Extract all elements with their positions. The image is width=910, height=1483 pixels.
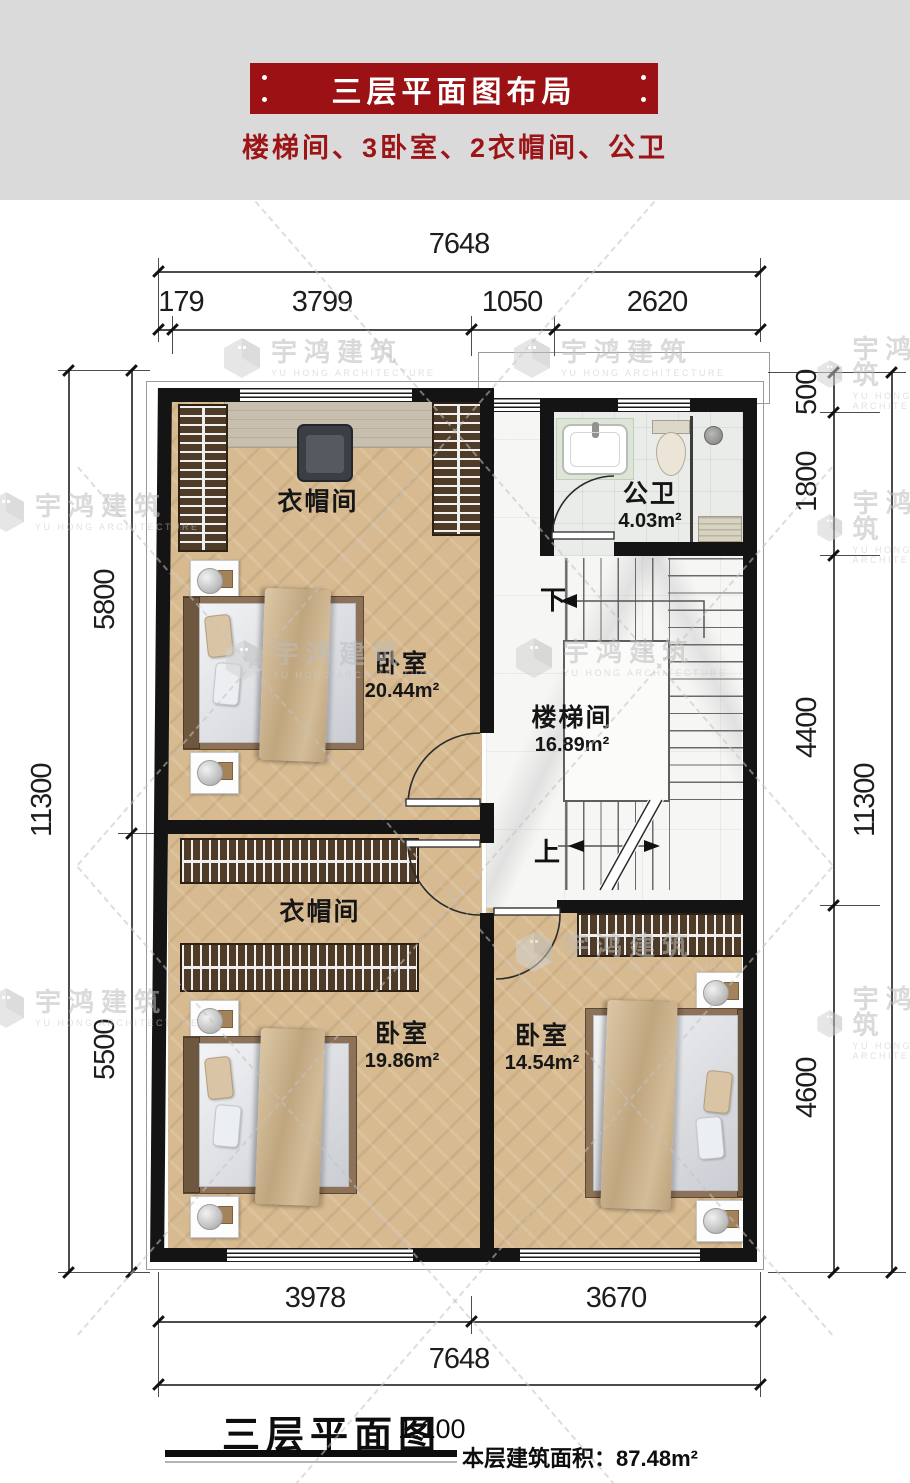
dim-seg: 1050 — [447, 286, 577, 319]
dim-seg: 4400 — [792, 648, 822, 808]
bed-headboard — [183, 597, 200, 749]
bed-bedroom-left — [183, 1036, 357, 1194]
dim-ext — [471, 1296, 472, 1334]
page-subtitle: 楼梯间、3卧室、2衣帽间、公卫 — [0, 126, 910, 165]
nightstand — [696, 1200, 745, 1242]
dim-seg: 1800 — [792, 402, 822, 562]
stair-up-mark: 上 — [534, 832, 560, 869]
watermark-en: YU HONG ARCHITECTURE — [852, 391, 910, 411]
banner-dot — [262, 97, 267, 102]
dim-ext — [820, 905, 880, 906]
bed-pillow — [204, 1056, 234, 1100]
bed-bedroom-top — [183, 596, 364, 750]
banner-dot — [641, 75, 646, 80]
dim-seg: 179 — [116, 286, 246, 319]
room-label-bathroom: 公卫 4.03m² — [618, 474, 681, 533]
page-title: 三层平面图布局 — [332, 67, 577, 111]
dim-seg: 3799 — [257, 286, 387, 319]
dim-seg: 5800 — [90, 520, 120, 680]
stair-flight-lower — [565, 800, 670, 890]
footer-area-value: 87.48m² — [616, 1446, 698, 1471]
wardrobe-bedroom-right — [577, 913, 756, 957]
banner-dot — [262, 75, 267, 80]
dim-ext — [58, 1272, 150, 1273]
footer-rule-thick — [165, 1450, 457, 1457]
dressing-chair — [297, 424, 353, 482]
dim-left-total: 11300 — [27, 720, 57, 880]
room-name: 衣帽间 — [277, 482, 358, 518]
footer-scale: 1:100 — [398, 1414, 466, 1445]
wall-right — [743, 398, 757, 1262]
sink — [562, 424, 628, 475]
stair-flight-upper — [565, 558, 670, 642]
dim-ext — [760, 1272, 761, 1397]
footer-area-label: 本层建筑面积： — [462, 1446, 616, 1471]
bed-pillow — [212, 1104, 242, 1148]
wall-corridor — [480, 803, 494, 843]
yuhong-logo-icon — [222, 336, 262, 380]
bed-blanket — [255, 1028, 325, 1206]
wardrobe-right — [432, 402, 484, 536]
room-name: 卧室 — [365, 1014, 440, 1050]
room-area: 4.03m² — [618, 510, 681, 533]
room-name: 衣帽间 — [279, 892, 360, 928]
dim-ext — [58, 370, 150, 371]
dim-line — [833, 372, 835, 1272]
banner-dot — [641, 97, 646, 102]
wall-corridor — [480, 913, 494, 1248]
dim-ext — [820, 412, 880, 413]
window-top-left — [240, 388, 412, 402]
watermark-text: 宇鸿建筑 YU HONG ARCHITECTURE — [852, 986, 910, 1061]
dim-seg: 3978 — [250, 1282, 380, 1315]
bed-headboard — [183, 1037, 200, 1193]
shower-bench — [698, 516, 742, 542]
dim-ext — [471, 316, 472, 356]
dim-ext — [768, 1272, 906, 1273]
room-label-bedroom-left: 卧室 19.86m² — [365, 1014, 440, 1073]
dim-bottom-total: 7648 — [394, 1343, 524, 1376]
watermark-cn: 宇鸿建筑 — [271, 339, 436, 365]
dim-line — [158, 271, 760, 273]
dim-seg: 2620 — [592, 286, 722, 319]
dim-top-total: 7648 — [394, 228, 524, 261]
dim-line — [158, 329, 760, 331]
watermark-text: 宇鸿建筑 YU HONG ARCHITECTURE — [852, 490, 910, 565]
wardrobe-mid-top — [180, 838, 419, 884]
room-name: 卧室 — [365, 644, 440, 680]
bed-pillow — [212, 662, 242, 706]
room-area: 19.86m² — [365, 1050, 440, 1073]
bed-pillow — [695, 1116, 725, 1160]
stair-flight-right — [668, 558, 743, 802]
watermark-cn: 宇鸿建筑 — [852, 986, 910, 1038]
room-area: 16.89m² — [531, 734, 612, 757]
window-bathroom — [618, 398, 690, 412]
wardrobe-mid-bottom — [180, 943, 419, 992]
room-area: 20.44m² — [365, 680, 440, 703]
room-label-stairs: 楼梯间 16.89m² — [531, 698, 612, 757]
bed-blanket — [259, 588, 331, 762]
nightstand — [190, 752, 239, 794]
bed-bedroom-right — [585, 1008, 754, 1198]
dim-seg: 4600 — [792, 1008, 822, 1168]
wall-bathroom-bottom — [614, 542, 743, 556]
shower-head-icon — [704, 426, 723, 445]
dim-line — [131, 370, 133, 1272]
dim-ext — [172, 316, 173, 354]
header-band: 三层平面图布局 楼梯间、3卧室、2衣帽间、公卫 — [0, 0, 910, 200]
bed-blanket — [600, 1000, 677, 1210]
wall-corridor — [480, 388, 494, 733]
roof-setback-outline — [478, 352, 770, 404]
watermark-text: 宇鸿建筑 YU HONG ARCHITECTURE — [271, 339, 436, 378]
footer-area: 本层建筑面积：87.48m² — [462, 1441, 698, 1473]
wall-bathroom-left — [540, 398, 554, 556]
window-corridor — [494, 398, 540, 412]
bed-pillow — [204, 614, 234, 658]
yuhong-logo-icon — [0, 490, 26, 534]
stair-down-mark: 下 — [540, 580, 566, 617]
dim-ext — [158, 1272, 159, 1397]
nightstand — [190, 1196, 239, 1238]
room-name: 公卫 — [618, 474, 681, 510]
yuhong-logo-icon — [0, 986, 26, 1030]
watermark-cn: 宇鸿建筑 — [852, 336, 910, 388]
watermark: 宇鸿建筑 YU HONG ARCHITECTURE — [222, 336, 436, 380]
dim-seg: 5500 — [90, 970, 120, 1130]
dim-line — [891, 372, 893, 1272]
page: 三层平面图布局 楼梯间、3卧室、2衣帽间、公卫 — [0, 0, 910, 1483]
watermark: 宇鸿建筑 YU HONG ARCHITECTURE — [816, 490, 910, 565]
window-bottom-left — [227, 1248, 413, 1262]
room-label-cloak-mid: 衣帽间 — [279, 892, 360, 928]
room-name: 卧室 — [505, 1016, 580, 1052]
dim-line — [68, 370, 70, 1272]
room-name: 楼梯间 — [531, 698, 612, 734]
dim-line — [158, 1321, 760, 1323]
footer-rule-thin — [165, 1461, 457, 1463]
watermark-text: 宇鸿建筑 YU HONG ARCHITECTURE — [852, 336, 910, 411]
window-bottom-right — [520, 1248, 700, 1262]
room-label-cloak-top: 衣帽间 — [277, 482, 358, 518]
watermark: 宇鸿建筑 YU HONG ARCHITECTURE — [816, 986, 910, 1061]
shower-partition — [690, 416, 693, 544]
dim-seg: 3670 — [551, 1282, 681, 1315]
wall-stair-bedroom — [557, 900, 743, 913]
room-label-bedroom-right: 卧室 14.54m² — [505, 1016, 580, 1075]
room-area: 14.54m² — [505, 1052, 580, 1075]
dim-ext — [820, 555, 880, 556]
dim-ext — [768, 372, 906, 373]
watermark-cn: 宇鸿建筑 — [852, 490, 910, 542]
bed-pillow — [703, 1070, 733, 1114]
title-banner: 三层平面图布局 — [250, 63, 658, 114]
wall-bathroom-bottom — [540, 542, 552, 556]
watermark-en: YU HONG ARCHITECTURE — [271, 368, 436, 378]
wardrobe-left — [178, 404, 228, 552]
dim-line — [158, 1384, 760, 1386]
dim-ext — [554, 316, 555, 356]
room-label-bedroom-top: 卧室 20.44m² — [365, 644, 440, 703]
dim-right-total: 11300 — [850, 720, 880, 880]
wall-mid-divider — [158, 820, 494, 834]
watermark-en: YU HONG ARCHITECTURE — [852, 1041, 910, 1061]
